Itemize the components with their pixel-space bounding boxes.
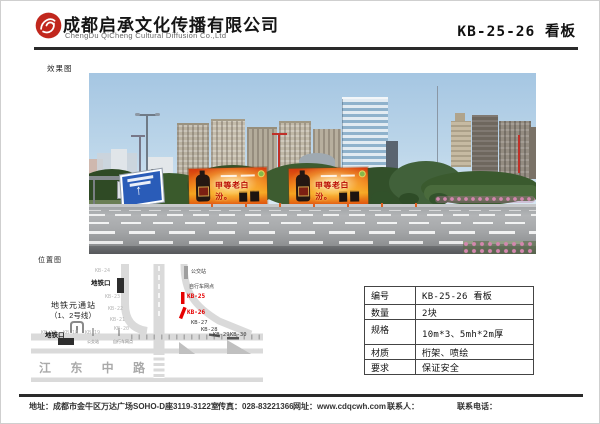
street-lamp-head [135, 113, 140, 116]
bike-point-label: 自行车网点 [189, 283, 214, 290]
product-shot [250, 190, 259, 201]
row-value: 保证安全 [416, 360, 534, 375]
map-marker-kb25: KB-25 [187, 293, 205, 300]
badge-roundel [258, 170, 265, 177]
map-marker-kb29: KB-29 [213, 332, 230, 338]
map-marker-kb20: KB-20 [114, 326, 129, 332]
lane-line [89, 231, 536, 234]
row-value: KB-25-26 看板 [416, 287, 534, 305]
row-value: 桁架、喷绘 [416, 345, 534, 360]
map-marker-kb19: KB-19 [85, 330, 100, 336]
row-value: 10m*3、5mh*2m厚 [416, 320, 534, 345]
directional-road-sign: ↑ [120, 169, 164, 209]
header-rule [34, 47, 578, 50]
product-shot [339, 192, 347, 202]
map-marker-kb30: KB-30 [230, 332, 247, 338]
construction-crane-red [518, 135, 520, 173]
badge-roundel [359, 170, 366, 177]
table-row: 编号 KB-25-26 看板 [365, 287, 534, 305]
document-title: KB-25-26 看板 [457, 20, 576, 41]
metro-exit-label-bottom: 地铁口 [45, 329, 65, 339]
construction-crane-red [272, 133, 287, 135]
billboard-info-table: 编号 KB-25-26 看板 数量 2块 规格 10m*3、5mh*2m厚 材质… [364, 286, 534, 375]
table-row: 数量 2块 [365, 305, 534, 320]
lane-line [89, 210, 536, 211]
phone-label: 联系电话： [457, 402, 497, 411]
product-shot [350, 190, 359, 201]
map-marker-kb27: KB-27 [191, 320, 208, 326]
table-row: 要求 保证安全 [365, 360, 534, 375]
street-lamp-arm [137, 114, 157, 116]
billboard-kb26: 甲等老白汾。 [289, 167, 369, 207]
bus-shelter-post [93, 180, 95, 205]
station-lines-label: （1、2号线） [50, 310, 96, 321]
footer-fax: 传真：028-83221366 [218, 401, 294, 412]
map-marker-kb21: KB-21 [110, 317, 125, 323]
glass-office-tower [342, 97, 388, 177]
fax-value: 028-83221366 [242, 402, 294, 411]
billboard-kb25: 甲等老白汾。 [189, 167, 268, 208]
table-row: 规格 10m*3、5mh*2m厚 [365, 320, 534, 345]
web-label: 网址： [293, 402, 317, 411]
dark-building [499, 121, 531, 179]
product-shot [239, 192, 247, 202]
map-marker-kb18: KB-18 [63, 330, 78, 336]
web-value: www.cdqcwh.com [317, 402, 386, 411]
construction-crane-grey [139, 135, 141, 177]
billboard-tagline-bar [241, 174, 255, 176]
flyer-page: 成都启承文化传播有限公司 ChengDu QiCheng Cultural Di… [0, 0, 600, 424]
billboard-location-photo: 甲等老白汾。 甲等老白汾。 ↑ [89, 73, 536, 254]
footer-rule [19, 394, 583, 397]
map-marker-kb22: KB-22 [108, 306, 123, 312]
row-value: 2块 [416, 305, 534, 320]
billboard-tagline-bar [321, 175, 337, 177]
map-marker-kb24: KB-24 [95, 268, 110, 274]
row-label: 材质 [365, 345, 416, 360]
liquor-bottle-graphic [296, 174, 310, 201]
row-label: 数量 [365, 305, 416, 320]
location-map: KB-24 KB-23 KB-22 KB-21 KB-20 KB-19 KB-1… [31, 264, 263, 382]
small-bus-stop-label: 公交站 [87, 339, 99, 345]
row-label: 要求 [365, 360, 416, 375]
flower-bed [463, 241, 536, 254]
contact-label: 联系人： [387, 402, 419, 411]
footer-address: 地址：成都市金牛区万达广场SOHO-D座3119-3122室 [29, 401, 219, 412]
row-label: 编号 [365, 287, 416, 305]
road-name-label: 江 东 中 路 [39, 359, 153, 376]
metro-exit-label-top: 地铁口 [91, 277, 111, 287]
billboard-tagline-bar [341, 175, 355, 177]
lane-line [89, 214, 536, 216]
flagpole [437, 86, 438, 172]
dark-building [472, 115, 498, 177]
map-marker-kb26: KB-26 [187, 309, 205, 316]
up-arrow-icon: ↑ [135, 181, 143, 198]
table-row: 材质 桁架、喷绘 [365, 345, 534, 360]
company-name-en: ChengDu QiCheng Cultural Diffusion Co.,L… [65, 31, 226, 40]
photo-section-label: 效果图 [47, 63, 73, 74]
lane-line [89, 222, 536, 224]
billboard-tagline-bar [221, 175, 237, 177]
flower-bed [435, 196, 535, 203]
street-lamp-head [155, 113, 160, 116]
footer-web: 网址：www.cdqcwh.com [293, 401, 386, 412]
footer-phone: 联系电话： [457, 401, 497, 412]
address-value: 成都市金牛区万达广场SOHO-D座3119-3122室 [53, 402, 219, 411]
bus-stop-label: 公交站 [191, 268, 206, 275]
footer-contact: 联系人： [387, 401, 419, 412]
company-logo-seal [35, 12, 62, 39]
map-marker-kb23: KB-23 [105, 294, 120, 300]
dark-building [529, 127, 536, 179]
liquor-bottle-graphic [196, 174, 211, 201]
tower-building [451, 121, 471, 167]
row-label: 规格 [365, 320, 416, 345]
small-bike-point-label: 自行车网点 [113, 339, 133, 345]
address-label: 地址： [29, 402, 53, 411]
construction-crane-grey [131, 135, 145, 137]
fax-label: 传真： [218, 402, 242, 411]
